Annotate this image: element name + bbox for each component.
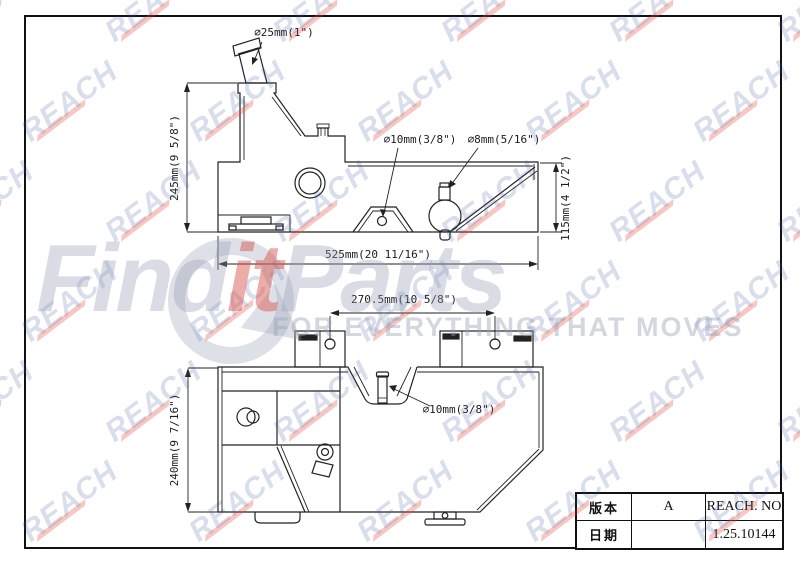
side-view-dimensions [184,42,562,270]
dim-total-length: 525mm(20 11/16") [325,248,431,261]
drain-boss [255,512,300,523]
title-block-date-value [632,521,706,548]
front-fitting [317,444,333,460]
title-block-version-label: 版本 [577,494,632,521]
mount-bracket [229,224,283,230]
dim-right-height: 115mm(4 1/2") [559,155,572,241]
title-block-reachno-label: REACH. NO [706,494,782,521]
drawing-sheet: ⌀25mm(1") ⌀10mm(3/8") ⌀8mm(5/16") 245mm(… [0,0,800,565]
label-neck-diameter: ⌀25mm(1") [254,26,314,39]
title-block-version-value: A [632,494,706,521]
label-top-hole-diameter: ⌀10mm(3/8") [384,133,457,146]
front-view [218,331,543,525]
title-block: 版本 A REACH. NO 日期 1.25.10144 [575,492,784,550]
dim-front-height: 240mm(9 7/16") [168,394,181,487]
dim-bracket-spacing: 270.5mm(10 5/8") [351,293,457,306]
title-block-reachno-value: 1.25.10144 [706,521,782,548]
dim-total-height: 245mm(9 5/8") [168,115,181,201]
label-vent-diameter: ⌀8mm(5/16") [468,133,541,146]
center-pin [378,376,387,403]
label-pin-diameter: ⌀10mm(3/8") [423,403,496,416]
tank-technical-drawing: ⌀25mm(1") ⌀10mm(3/8") ⌀8mm(5/16") 245mm(… [0,0,800,565]
title-block-date-label: 日期 [577,521,632,548]
